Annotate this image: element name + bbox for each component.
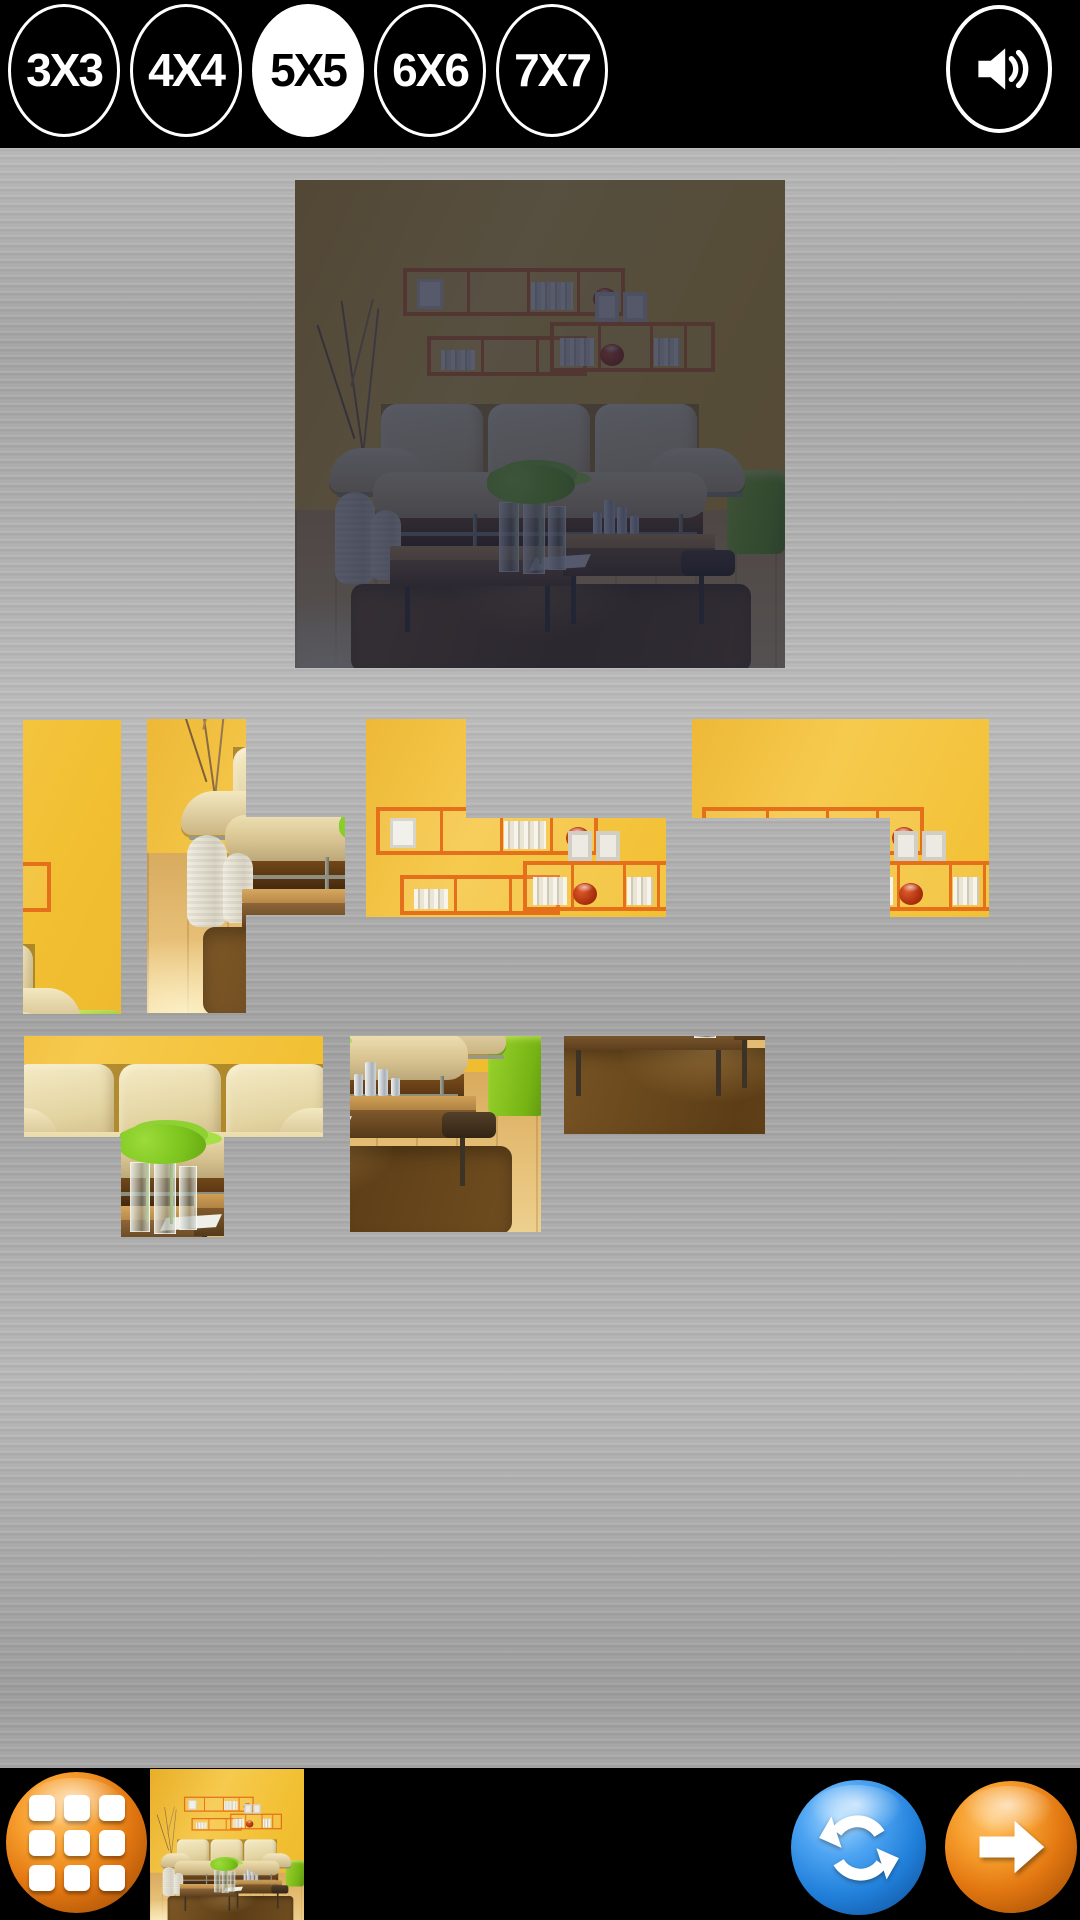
shuffle-button[interactable] bbox=[791, 1780, 926, 1915]
grid-size-button-7x7[interactable]: 7X7 bbox=[496, 4, 608, 137]
scene-sofa-frame bbox=[237, 875, 345, 879]
scene-coffee-table-left bbox=[242, 889, 345, 903]
scene-glass-vase bbox=[222, 1869, 229, 1893]
scene-green-flowers bbox=[118, 1124, 206, 1164]
arrow-right-icon bbox=[969, 1805, 1053, 1889]
puzzle-piece-g[interactable] bbox=[564, 1036, 765, 1135]
sound-button[interactable] bbox=[946, 5, 1052, 133]
scene-candle bbox=[365, 1062, 376, 1096]
speaker-on-icon bbox=[966, 36, 1032, 102]
scene-rug bbox=[168, 1896, 294, 1920]
puzzle-image-thumbnail bbox=[150, 1769, 304, 1920]
grid-size-button-3x3[interactable]: 3X3 bbox=[8, 4, 120, 137]
scene-candle bbox=[251, 1872, 254, 1880]
scene-shelf-middle bbox=[23, 862, 51, 912]
scene-glass-vase bbox=[179, 1166, 197, 1230]
scene-glass-vase bbox=[694, 1036, 716, 1038]
scene-glass-vase bbox=[130, 1162, 150, 1232]
living-room-scene-image bbox=[564, 1036, 765, 1134]
scene-shelf-middle bbox=[230, 1814, 282, 1830]
scene-rug bbox=[350, 1146, 512, 1232]
thumbnail-scene-holder bbox=[150, 1769, 304, 1920]
scene-picture-frames bbox=[568, 831, 624, 861]
living-room-scene-image bbox=[23, 720, 121, 1014]
scene-dark-cushion bbox=[271, 1885, 288, 1893]
menu-button[interactable] bbox=[6, 1772, 147, 1913]
scene-candle bbox=[244, 1873, 247, 1880]
scene-glass-vase bbox=[214, 1870, 220, 1892]
scene-coffee-table-right bbox=[350, 1096, 476, 1110]
puzzle-piece-a[interactable] bbox=[23, 720, 121, 1014]
scene-candle bbox=[391, 1078, 400, 1096]
preview-dim-overlay bbox=[295, 180, 785, 668]
scene-glass-vase bbox=[154, 1158, 176, 1234]
grid-size-button-4x4[interactable]: 4X4 bbox=[130, 4, 242, 137]
scene-rug bbox=[564, 1048, 765, 1134]
scene-candle bbox=[378, 1069, 388, 1096]
scene-white-vase bbox=[187, 835, 227, 927]
scene-candle bbox=[354, 1074, 363, 1096]
grid-size-button-6x6[interactable]: 6X6 bbox=[374, 4, 486, 137]
grid-menu-icon bbox=[29, 1795, 125, 1891]
puzzle-piece-f[interactable] bbox=[350, 1036, 541, 1235]
living-room-scene-image bbox=[150, 1769, 304, 1920]
scene-glass-vase bbox=[230, 1871, 236, 1891]
refresh-icon bbox=[815, 1804, 903, 1892]
scene-shelf-upper bbox=[184, 1797, 254, 1812]
scene-green-flowers bbox=[210, 1858, 238, 1871]
scene-candle bbox=[255, 1875, 258, 1881]
living-room-scene-image bbox=[350, 1036, 541, 1232]
scene-dark-cushion bbox=[442, 1112, 496, 1138]
scene-picture-frames bbox=[244, 1804, 262, 1813]
scene-picture-frames bbox=[894, 831, 950, 861]
grid-size-button-5x5[interactable]: 5X5 bbox=[252, 4, 364, 137]
next-button[interactable] bbox=[945, 1781, 1077, 1913]
puzzle-board-preview[interactable] bbox=[295, 180, 785, 668]
scene-candle bbox=[247, 1870, 250, 1881]
scene-shelf-middle bbox=[523, 861, 666, 911]
top-bar: 3X34X45X56X67X7 bbox=[0, 0, 1080, 148]
